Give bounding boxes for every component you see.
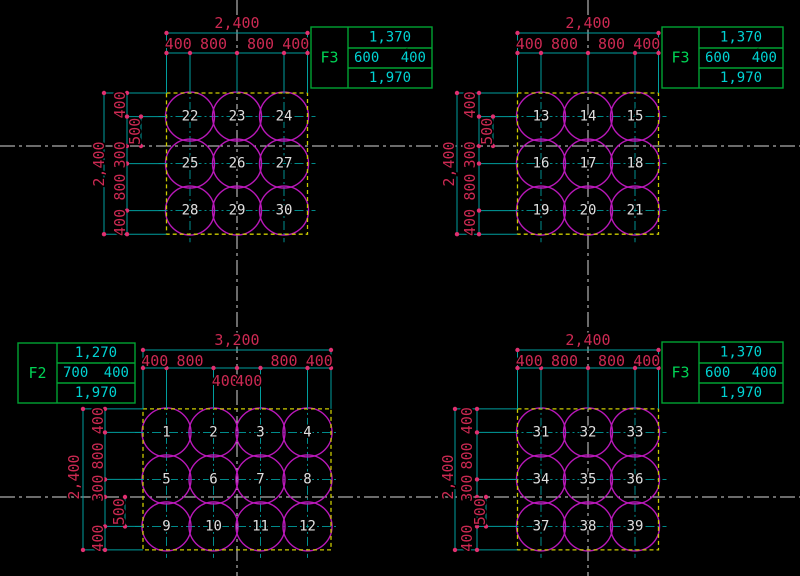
dimension-label: 400 [89, 525, 107, 552]
dimension-label: 500 [126, 118, 144, 145]
dimension-label: 800 [89, 442, 107, 469]
pile-number: 29 [229, 203, 246, 219]
pile-number: 1 [162, 424, 170, 440]
dimension-label: 800 [598, 35, 625, 53]
dimension-total-label: 3,200 [214, 331, 259, 349]
pile-number: 3 [256, 424, 264, 440]
pile-number: 5 [162, 471, 170, 487]
pile-number: 7 [256, 471, 264, 487]
dimension-label: 400 [633, 352, 660, 370]
footing-group-top-right: 2,4004008008004002,400400300800400500F31… [440, 14, 783, 242]
table-value: 700 [63, 365, 88, 381]
dimension-label: 400 [461, 91, 479, 118]
footing-group-top-left: 2,4004008008004002,400400300800400500F31… [90, 14, 432, 242]
pile-number: 25 [182, 156, 199, 172]
table-value: 1,370 [369, 30, 411, 46]
dimension-label: 300 [461, 141, 479, 168]
dimension-label: 300 [458, 475, 476, 502]
pile-number: 8 [303, 471, 311, 487]
table-value: 1,970 [720, 385, 762, 401]
dimension-label: 400 [235, 372, 262, 390]
pile-number: 30 [276, 203, 293, 219]
dimension-label: 400 [111, 91, 129, 118]
dimension-dot [211, 366, 215, 370]
dimension-label: 400 [111, 209, 129, 236]
dimension-label: 800 [551, 352, 578, 370]
table-value: 1,970 [369, 70, 411, 86]
footing-label: F2 [28, 364, 46, 382]
table-value: 600 [705, 50, 730, 66]
dimension-label: 500 [471, 498, 489, 525]
pile-number: 9 [162, 518, 170, 534]
pile-number: 11 [252, 518, 269, 534]
pile-number: 23 [229, 109, 246, 125]
dimension-label: 400 [461, 209, 479, 236]
dimension-total-label: 2,400 [214, 14, 259, 32]
table-value: 400 [401, 50, 426, 66]
dimension-label: 400 [633, 35, 660, 53]
table-value: 400 [104, 365, 129, 381]
pile-number: 4 [303, 424, 311, 440]
pile-number: 22 [182, 109, 199, 125]
dimension-label: 800 [551, 35, 578, 53]
footing-group-bottom-left: 3,2004008008004004004002,400400800300400… [18, 331, 339, 558]
dimension-label: 800 [176, 352, 203, 370]
pile-number: 32 [580, 424, 597, 440]
dimension-label: 800 [270, 352, 297, 370]
drawing-canvas[interactable]: 2,4004008008004002,400400300800400500F31… [0, 0, 800, 576]
dimension-label: 800 [200, 35, 227, 53]
pile-number: 38 [580, 518, 597, 534]
dimension-dot [455, 232, 459, 236]
table-value: 600 [705, 365, 730, 381]
pile-number: 35 [580, 471, 597, 487]
dimension-label: 400 [458, 525, 476, 552]
dimension-total-label: 2,400 [565, 331, 610, 349]
table-value: 1,370 [720, 345, 762, 361]
pile-number: 2 [209, 424, 217, 440]
table-value: 1,970 [75, 385, 117, 401]
dimension-label: 500 [478, 118, 496, 145]
pile-number: 10 [205, 518, 222, 534]
dimension-label: 400 [516, 352, 543, 370]
pile-number: 6 [209, 471, 217, 487]
grid-centerlines [0, 0, 800, 576]
pile-number: 24 [276, 109, 293, 125]
dimension-label: 800 [111, 174, 129, 201]
pile-number: 20 [580, 203, 597, 219]
pile-number: 31 [533, 424, 550, 440]
pile-number: 34 [533, 471, 550, 487]
dimension-total-label: 2,400 [440, 141, 458, 186]
pile-number: 33 [627, 424, 644, 440]
dimension-label: 800 [458, 442, 476, 469]
dimension-label: 400 [282, 35, 309, 53]
footing-label: F3 [671, 49, 689, 67]
dimension-dot [102, 232, 106, 236]
pile-number: 26 [229, 156, 246, 172]
table-value: 1,370 [720, 30, 762, 46]
pile-number: 27 [276, 156, 293, 172]
pile-number: 16 [533, 156, 550, 172]
dimension-total-label: 2,400 [439, 454, 457, 499]
dimension-label: 800 [461, 174, 479, 201]
pile-number: 14 [580, 109, 597, 125]
pile-number: 12 [299, 518, 316, 534]
dimension-label: 800 [598, 352, 625, 370]
footing-label: F3 [671, 364, 689, 382]
dimension-dot [235, 51, 239, 55]
pile-number: 17 [580, 156, 597, 172]
dimension-label: 500 [110, 498, 128, 525]
dimension-label: 300 [89, 475, 107, 502]
pile-number: 15 [627, 109, 644, 125]
dimension-total-label: 2,400 [90, 141, 108, 186]
dimension-label: 400 [458, 407, 476, 434]
pile-number: 37 [533, 518, 550, 534]
table-value: 400 [752, 365, 777, 381]
table-value: 400 [752, 50, 777, 66]
dimension-label: 400 [516, 35, 543, 53]
dimension-dot [102, 91, 106, 95]
pile-number: 18 [627, 156, 644, 172]
dimension-dot [81, 407, 85, 411]
dimension-label: 400 [89, 407, 107, 434]
pile-number: 36 [627, 471, 644, 487]
pile-number: 13 [533, 109, 550, 125]
dimension-total-label: 2,400 [65, 454, 83, 499]
table-value: 1,970 [720, 70, 762, 86]
dimension-dot [586, 366, 590, 370]
dimension-dot [455, 91, 459, 95]
pile-number: 19 [533, 203, 550, 219]
dimension-dot [586, 51, 590, 55]
dimension-dot [453, 407, 457, 411]
dimension-dot [258, 366, 262, 370]
dimension-label: 400 [141, 352, 168, 370]
dimension-label: 800 [247, 35, 274, 53]
dimension-label: 400 [306, 352, 333, 370]
dimension-total-label: 2,400 [565, 14, 610, 32]
pile-number: 28 [182, 203, 199, 219]
dimension-dot [235, 366, 239, 370]
table-value: 600 [354, 50, 379, 66]
dimension-label: 400 [165, 35, 192, 53]
pile-number: 39 [627, 518, 644, 534]
footing-label: F3 [320, 49, 338, 67]
footing-group-bottom-right: 2,4004008008004002,400400800300400500F31… [439, 331, 783, 558]
pile-number: 21 [627, 203, 644, 219]
cad-viewport: 2,4004008008004002,400400300800400500F31… [0, 0, 800, 576]
dimension-dot [81, 548, 85, 552]
dimension-dot [453, 548, 457, 552]
table-value: 1,270 [75, 345, 117, 361]
